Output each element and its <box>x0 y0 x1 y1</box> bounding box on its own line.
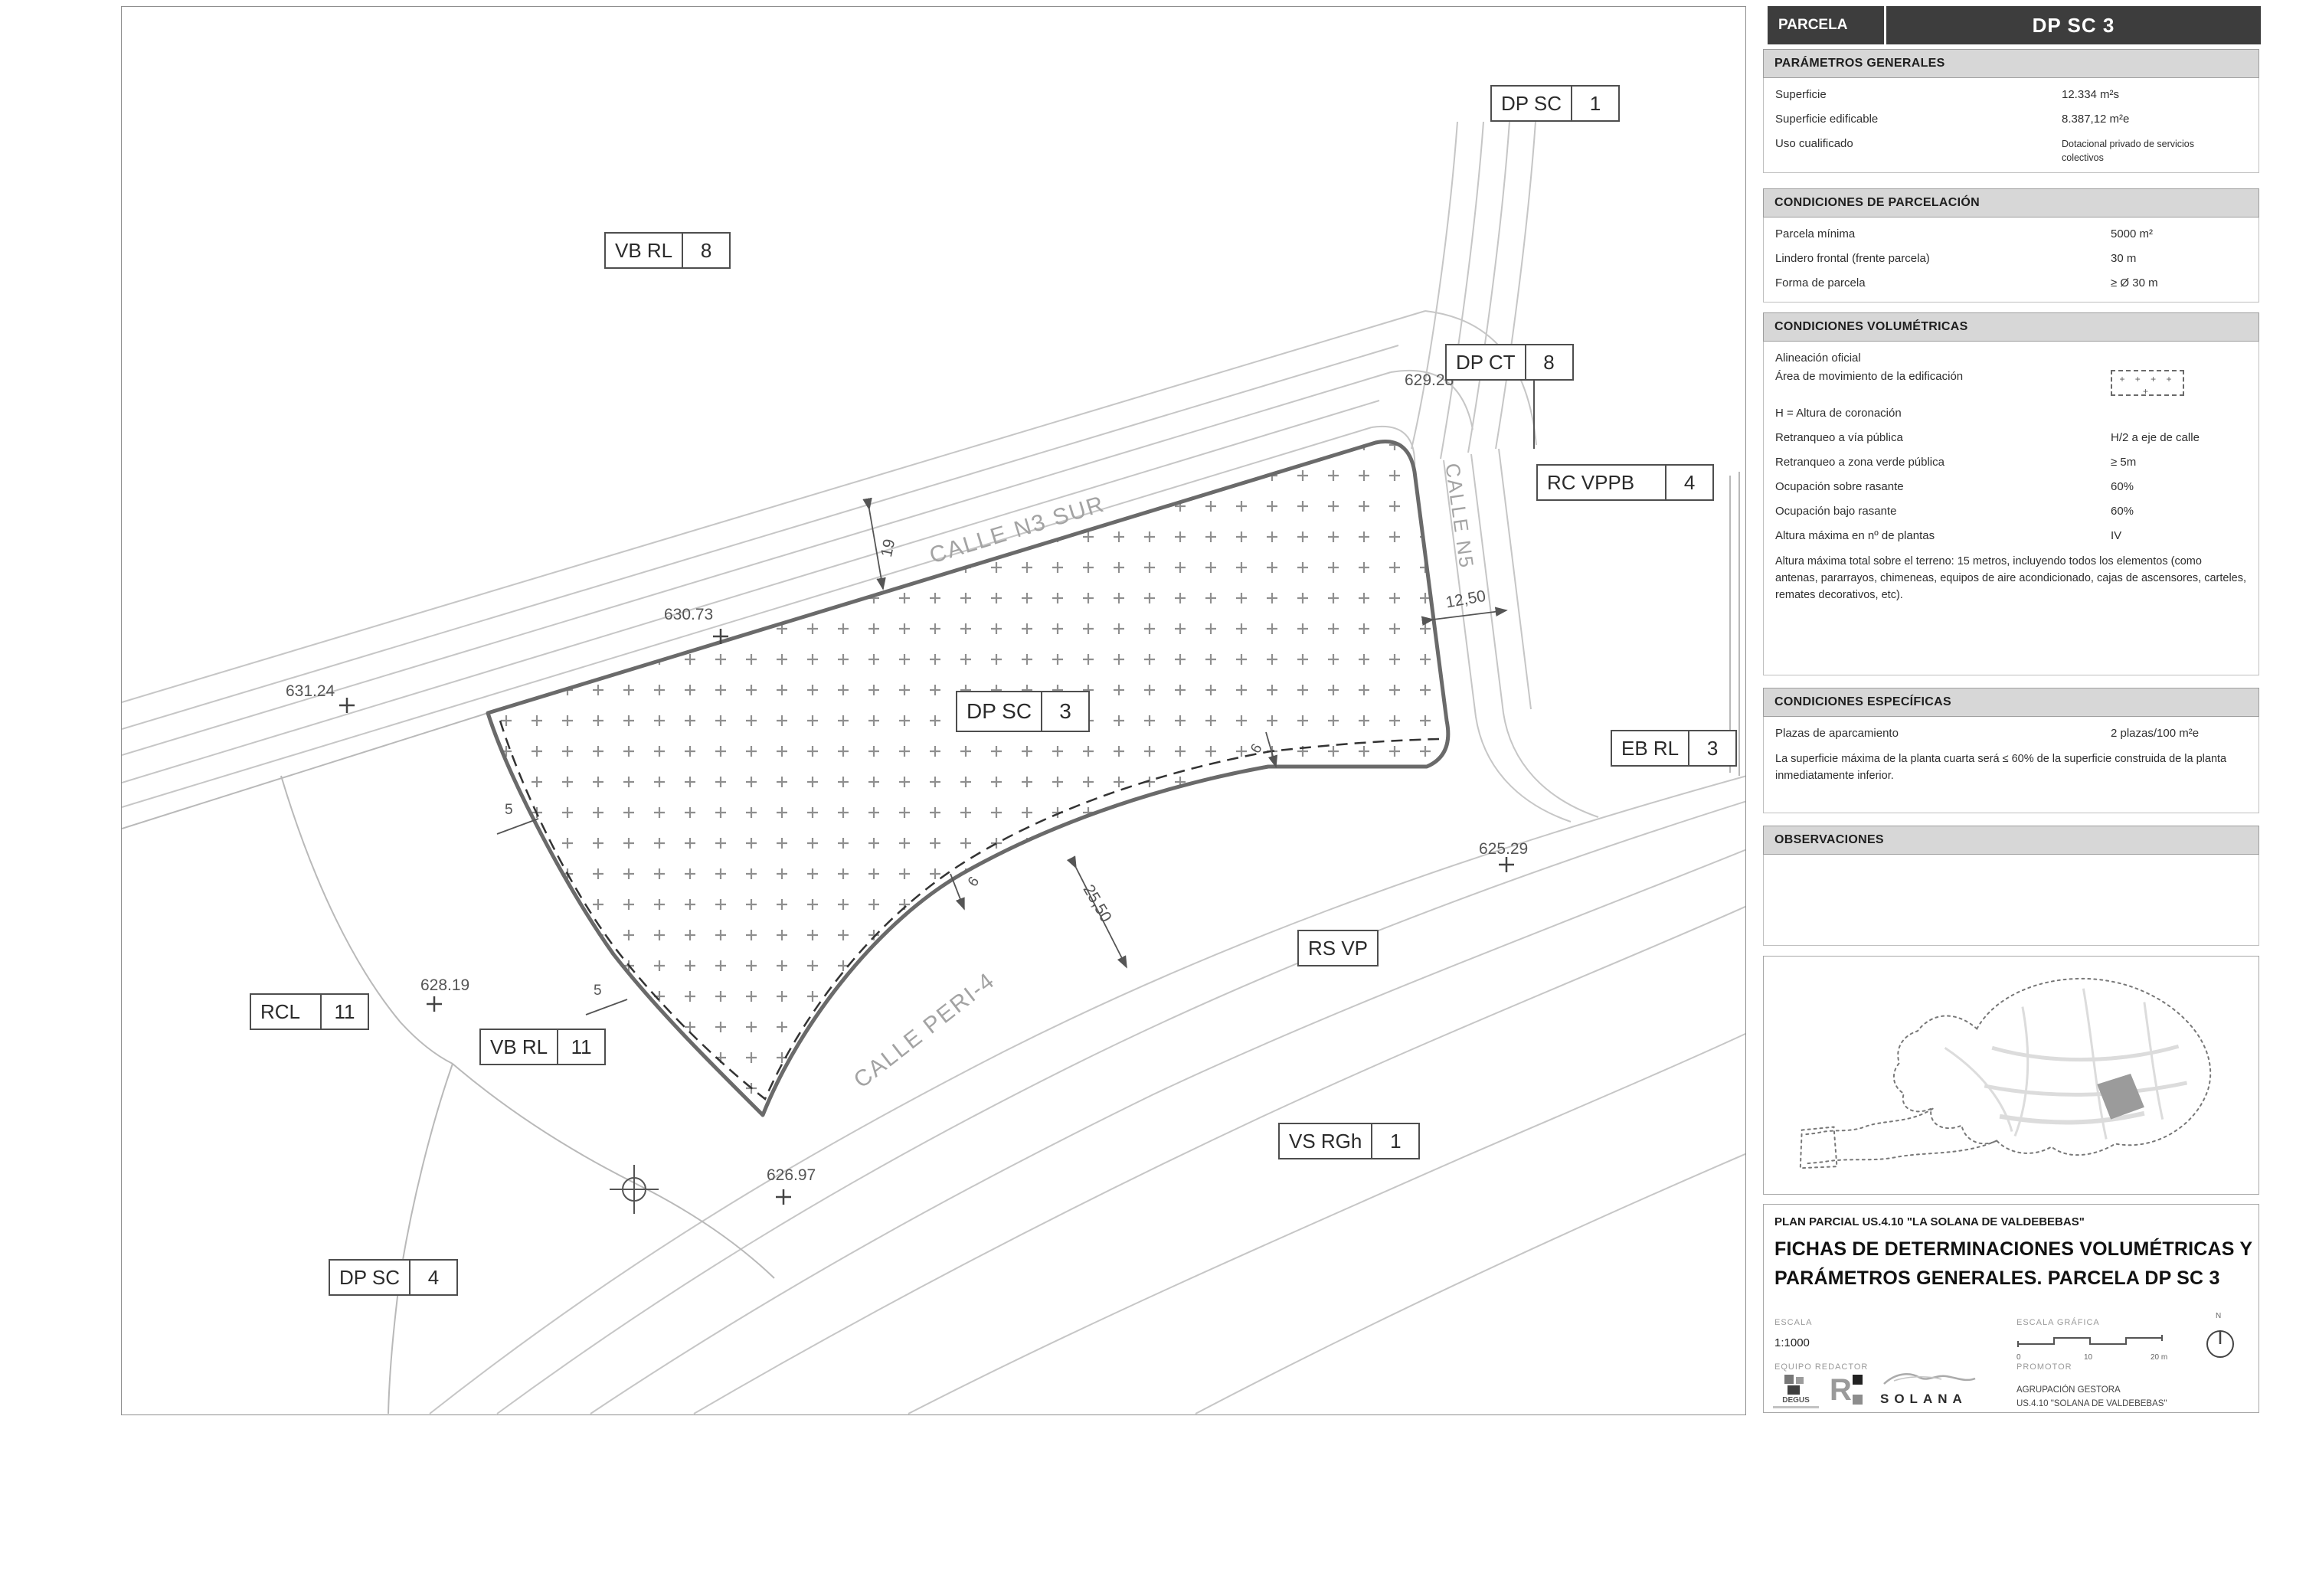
elevation-label: 626.97 <box>767 1166 816 1184</box>
site-plan-panel: CALLE N3 SUR CALLE N5 CALLE PERI-4 629.2… <box>121 6 1746 1415</box>
dimension-label: 25,50 <box>1080 881 1115 925</box>
zone-label-dp-sc-1: DP SC1 <box>1490 85 1620 122</box>
zone-code: DP SC <box>1492 87 1571 120</box>
zone-code: DP CT <box>1447 345 1525 379</box>
north-label: N <box>2216 1312 2221 1320</box>
param-row: Retranqueo a zona verde pública ≥ 5m <box>1775 456 2258 469</box>
zone-code: DP SC <box>330 1261 409 1294</box>
scale-tick-10: 10 <box>2084 1353 2092 1362</box>
volumetricas-note: Altura máxima total sobre el terreno: 15… <box>1775 554 2246 603</box>
sheet-header: PARCELA DP SC 3 <box>1768 6 2261 44</box>
param-row: Ocupación bajo rasante 60% <box>1775 505 2258 518</box>
zone-code: VS RGh <box>1280 1124 1371 1158</box>
site-plan-drawing: CALLE N3 SUR CALLE N5 CALLE PERI-4 629.2… <box>122 7 1745 1414</box>
zone-number: 11 <box>320 995 368 1029</box>
degus-logo-icon <box>1784 1375 1807 1395</box>
zone-label-rs-vp: RS VP <box>1297 930 1379 966</box>
zone-number: 8 <box>682 234 729 267</box>
param-value: 5000 m² <box>2111 227 2153 240</box>
section-title-volumetricas: CONDICIONES VOLUMÉTRICAS <box>1763 312 2259 342</box>
param-value: IV <box>2111 529 2121 542</box>
section-body-especificas: Plazas de aparcamiento 2 plazas/100 m²e … <box>1763 717 2259 813</box>
param-row: Uso cualificado Dotacional privado de se… <box>1775 137 2258 151</box>
param-label: Altura máxima en nº de plantas <box>1775 529 1935 542</box>
north-arrow-icon <box>2199 1321 2242 1364</box>
param-row: Plazas de aparcamiento 2 plazas/100 m²e <box>1775 727 2258 741</box>
zone-number: 8 <box>1525 345 1572 379</box>
param-row: Lindero frontal (frente parcela) 30 m <box>1775 252 2258 266</box>
especificas-note: La superficie máxima de la planta cuarta… <box>1775 751 2246 785</box>
survey-crosshair-icon <box>610 1165 659 1214</box>
param-value: H/2 a eje de calle <box>2111 431 2200 444</box>
degus-logo-tagline <box>1773 1406 1819 1408</box>
degus-logo: DEGUS <box>1773 1375 1819 1408</box>
param-label: Forma de parcela <box>1775 276 1866 289</box>
param-row: Forma de parcela ≥ Ø 30 m <box>1775 276 2258 290</box>
zone-label-dp-ct-8: DP CT8 <box>1445 344 1574 381</box>
dimension-label: 12,50 <box>1444 587 1487 612</box>
param-value: ≥ Ø 30 m <box>2111 276 2158 289</box>
street-name-n5: CALLE N5 <box>1441 462 1478 571</box>
param-row: Retranqueo a vía pública H/2 a eje de ca… <box>1775 431 2258 445</box>
locator-map-panel <box>1763 956 2259 1195</box>
zone-code: RCL <box>251 995 320 1029</box>
locator-streets <box>1945 989 2187 1140</box>
promotor-label: PROMOTOR <box>2016 1362 2072 1372</box>
zone-code: DP SC <box>957 692 1041 731</box>
r-logo-square-dark <box>1853 1375 1863 1385</box>
movement-area-symbol: + + + + + + + + + + <box>2111 370 2184 396</box>
param-label: Parcela mínima <box>1775 227 1855 240</box>
dimension-label: 5 <box>594 983 602 999</box>
solana-logo-sketch-icon <box>1880 1369 1980 1387</box>
param-value: 60% <box>2111 480 2134 493</box>
solana-logo-text: SOLANA <box>1880 1392 1995 1407</box>
param-value: Dotacional privado de servicios colectiv… <box>2062 138 2234 165</box>
plus-hatch-row: + + + + + <box>2112 373 2183 396</box>
equipo-redactor-label: EQUIPO REDACTOR <box>1774 1362 1868 1372</box>
param-label: H = Altura de coronación <box>1775 407 1902 420</box>
elevation-label: 625.29 <box>1479 840 1528 858</box>
param-row: H = Altura de coronación <box>1775 407 2258 420</box>
zone-code: VB RL <box>481 1030 557 1064</box>
section-title-parcelacion: CONDICIONES DE PARCELACIÓN <box>1763 188 2259 217</box>
zone-label-rcl-11: RCL11 <box>250 993 369 1030</box>
scale-tick-0: 0 <box>2016 1353 2021 1362</box>
street-name-peri4: CALLE PERI-4 <box>849 968 1000 1094</box>
degus-logo-text: DEGUS <box>1773 1396 1819 1405</box>
zone-code: RS VP <box>1299 931 1377 965</box>
zone-number: 3 <box>1041 692 1088 731</box>
param-label: Ocupación bajo rasante <box>1775 505 1896 518</box>
param-row: Área de movimiento de la edificación + +… <box>1775 370 2258 402</box>
section-body-volumetricas: Alineación oficial Área de movimiento de… <box>1763 342 2259 675</box>
r-logo: R <box>1830 1372 1869 1408</box>
zone-label-eb-rl-3: EB RL3 <box>1611 730 1737 767</box>
solana-logo: SOLANA <box>1880 1369 1995 1407</box>
dimension-label: 19 <box>878 538 898 559</box>
parcela-value: DP SC 3 <box>1886 6 2261 44</box>
param-value: ≥ 5m <box>2111 456 2136 469</box>
zone-label-vs-rgh-1: VS RGh1 <box>1278 1123 1420 1159</box>
plan-title: PLAN PARCIAL US.4.10 "LA SOLANA DE VALDE… <box>1774 1215 2085 1228</box>
r-logo-letter: R <box>1830 1373 1852 1408</box>
param-label: Área de movimiento de la edificación <box>1775 370 1963 383</box>
promotor-name-line2: US.4.10 "SOLANA DE VALDEBEBAS" <box>2016 1398 2167 1411</box>
param-value: 60% <box>2111 505 2134 518</box>
dimension-label: 6 <box>965 874 983 890</box>
param-label: Plazas de aparcamiento <box>1775 727 1899 740</box>
zone-number: 1 <box>1371 1124 1418 1158</box>
zone-label-rc-vppb-4: RC VPPB4 <box>1536 464 1714 501</box>
zone-code: RC VPPB <box>1538 466 1665 499</box>
dimension-label: 5 <box>505 802 513 818</box>
locator-site-boundary <box>1801 979 2210 1168</box>
param-row: Superficie edificable 8.387,12 m²e <box>1775 113 2258 126</box>
elevation-label: 631.24 <box>286 682 335 700</box>
locator-map <box>1764 957 2258 1194</box>
param-label: Lindero frontal (frente parcela) <box>1775 252 1930 265</box>
param-label: Retranqueo a zona verde pública <box>1775 456 1944 469</box>
escala-label: ESCALA <box>1774 1318 1812 1327</box>
param-label: Ocupación sobre rasante <box>1775 480 1904 493</box>
promotor-name-line1: AGRUPACIÓN GESTORA <box>2016 1384 2121 1397</box>
zone-number: 1 <box>1571 87 1618 120</box>
zone-label-dp-sc-3: DP SC3 <box>956 691 1090 732</box>
section-body-parcelacion: Parcela mínima 5000 m² Lindero frontal (… <box>1763 217 2259 303</box>
param-row: Superficie 12.334 m²s <box>1775 88 2258 102</box>
graphic-scale-bar <box>2016 1332 2170 1352</box>
param-value: 12.334 m²s <box>2062 88 2119 101</box>
r-logo-square-gray <box>1853 1395 1863 1405</box>
param-value: 2 plazas/100 m²e <box>2111 727 2199 740</box>
param-value: 8.387,12 m²e <box>2062 113 2129 126</box>
escala-grafica-label: ESCALA GRÁFICA <box>2016 1318 2100 1327</box>
param-value: 30 m <box>2111 252 2136 265</box>
param-label: Superficie <box>1775 88 1827 101</box>
zone-number: 4 <box>409 1261 456 1294</box>
elevation-label: 630.73 <box>664 606 713 623</box>
escala-value: 1:1000 <box>1774 1336 1810 1349</box>
section-title-observaciones: OBSERVACIONES <box>1763 826 2259 855</box>
scale-tick-20: 20 m <box>2151 1353 2167 1362</box>
zone-label-vb-rl-11: VB RL11 <box>479 1029 606 1065</box>
param-row: Parcela mínima 5000 m² <box>1775 227 2258 241</box>
zone-number: 11 <box>557 1030 604 1064</box>
param-label: Retranqueo a vía pública <box>1775 431 1903 444</box>
elevation-label: 628.19 <box>420 976 469 994</box>
section-title-parametros: PARÁMETROS GENERALES <box>1763 49 2259 78</box>
section-body-parametros: Superficie 12.334 m²s Superficie edifica… <box>1763 78 2259 173</box>
param-label: Uso cualificado <box>1775 137 1853 150</box>
zone-label-dp-sc-4: DP SC4 <box>329 1259 458 1296</box>
title-block: PLAN PARCIAL US.4.10 "LA SOLANA DE VALDE… <box>1763 1204 2259 1413</box>
sheet-title-line1: FICHAS DE DETERMINACIONES VOLUMÉTRICAS Y <box>1774 1238 2252 1261</box>
zone-code: VB RL <box>606 234 682 267</box>
zone-code: EB RL <box>1612 731 1688 765</box>
param-row: Altura máxima en nº de plantas IV <box>1775 529 2258 543</box>
param-row: Alineación oficial <box>1775 352 2258 365</box>
zone-label-vb-rl-8: VB RL8 <box>604 232 731 269</box>
parcela-label: PARCELA <box>1768 6 1884 44</box>
section-title-especificas: CONDICIONES ESPECÍFICAS <box>1763 688 2259 717</box>
zone-number: 4 <box>1665 466 1712 499</box>
param-label: Alineación oficial <box>1775 352 1861 365</box>
sheet-title-line2: PARÁMETROS GENERALES. PARCELA DP SC 3 <box>1774 1267 2220 1290</box>
param-label: Superficie edificable <box>1775 113 1878 126</box>
section-body-observaciones <box>1763 855 2259 946</box>
zone-number: 3 <box>1688 731 1735 765</box>
param-row: Ocupación sobre rasante 60% <box>1775 480 2258 494</box>
